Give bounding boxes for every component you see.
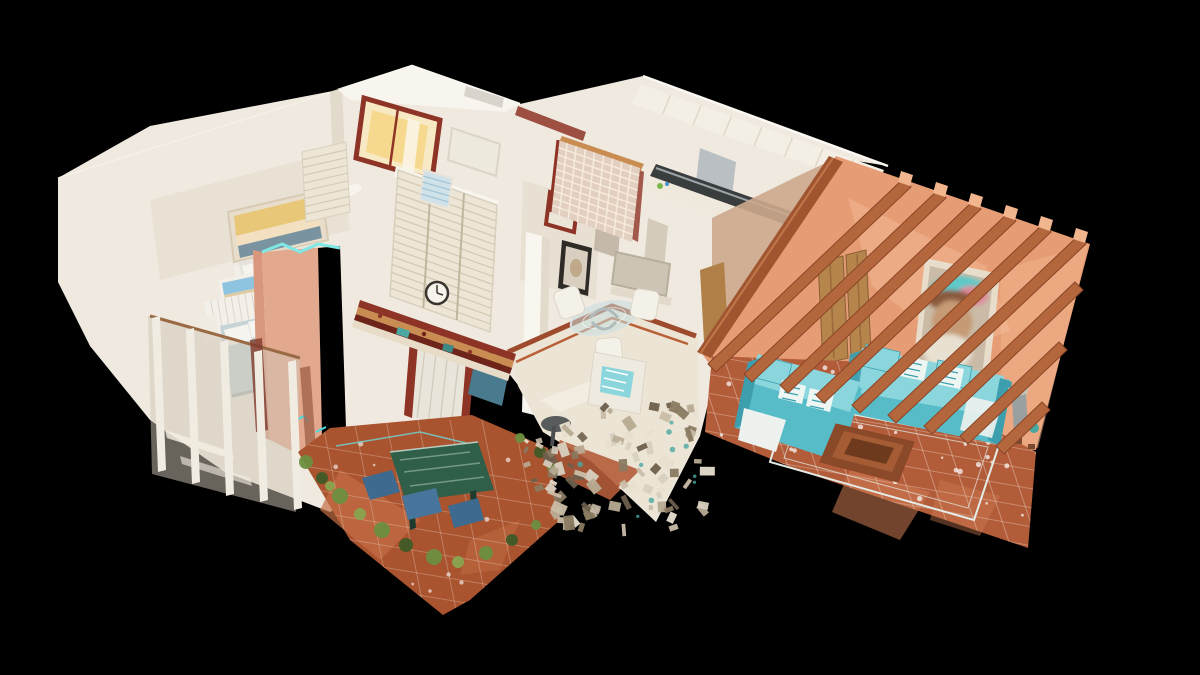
- green-bottle: [657, 183, 663, 189]
- debris-dot: [422, 332, 426, 336]
- debris-dot: [468, 350, 472, 354]
- picture-figure: [570, 259, 582, 277]
- wall-clock: [426, 282, 448, 304]
- side-table-leg: [552, 426, 554, 446]
- dollhouse-3d-view[interactable]: [0, 0, 1200, 675]
- debris-dot: [378, 314, 382, 318]
- wood-bit: [1028, 444, 1035, 449]
- blue-bottle: [665, 182, 669, 186]
- 3d-viewport[interactable]: [0, 0, 1200, 675]
- dining-chair: [630, 288, 661, 321]
